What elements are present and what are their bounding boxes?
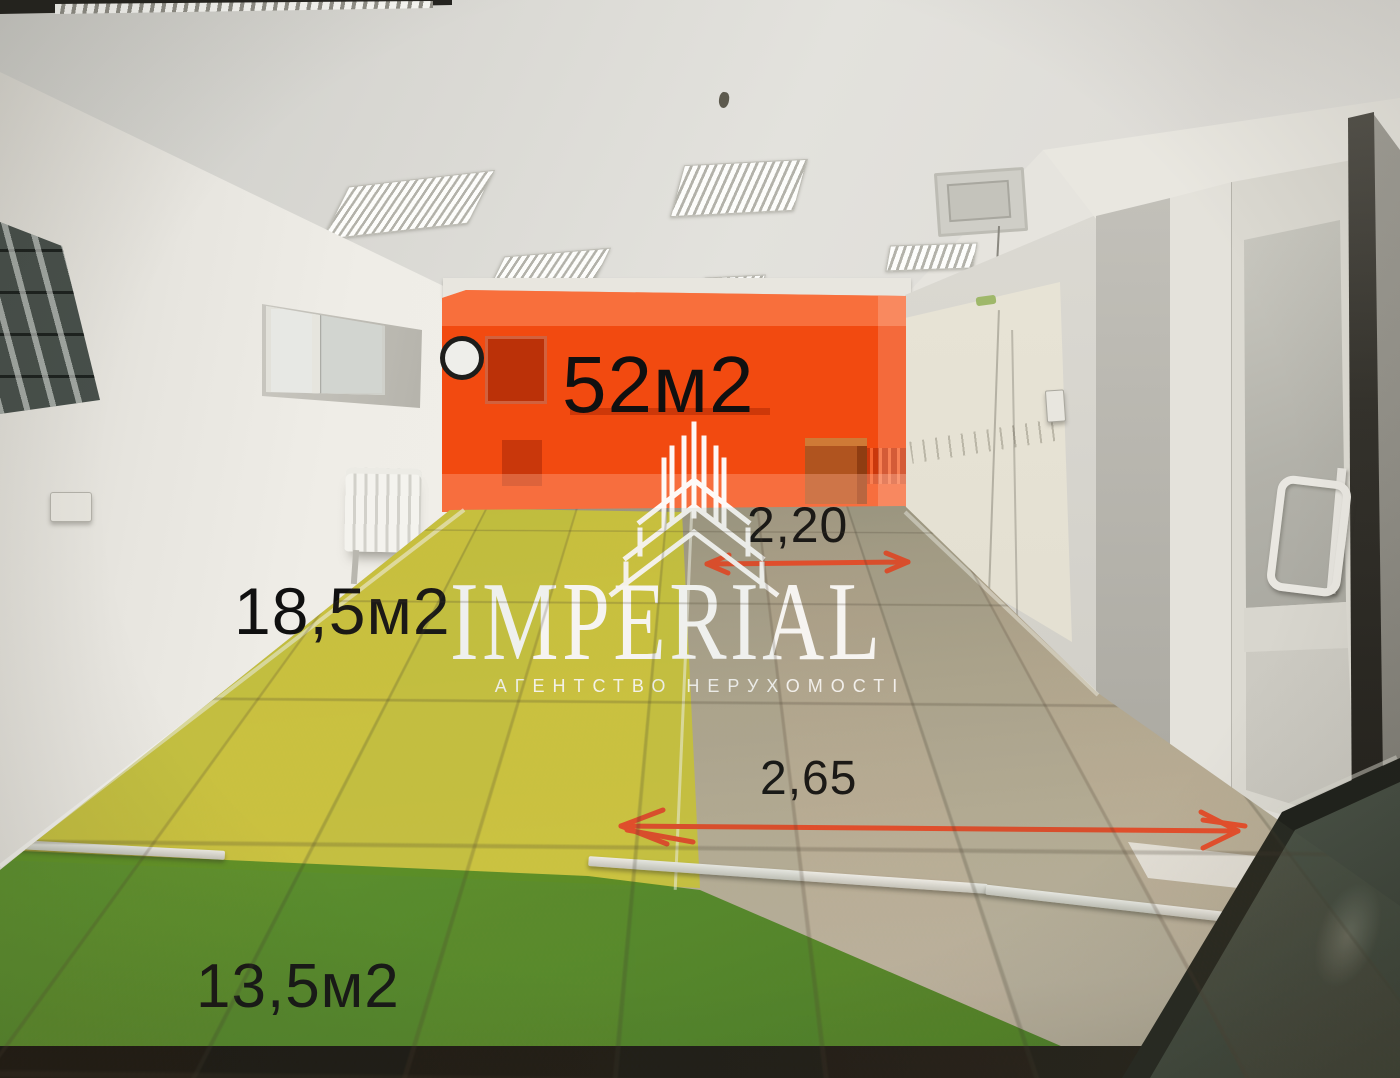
zone-label-back: 52м2 <box>562 345 754 425</box>
imperial-tagline: АГЕНТСТВО НЕРУХОМОСТІ <box>440 676 960 697</box>
measure-label-front: 2,65 <box>760 755 857 803</box>
light-switch <box>1045 389 1066 422</box>
ceiling-vent-inner <box>947 180 1011 222</box>
back-room-window <box>485 336 547 404</box>
radiator <box>344 467 421 552</box>
back-room-right-light <box>878 296 906 512</box>
zone-label-middle: 18,5м2 <box>234 578 451 644</box>
ceiling-light <box>670 159 808 217</box>
imperial-wordmark: IMPERIAL <box>450 566 884 678</box>
door-frame <box>1168 178 1234 804</box>
wall-outlet <box>50 492 92 522</box>
measure-arrow-front <box>605 798 1255 858</box>
door-handle <box>1265 474 1353 598</box>
leaning-glass-panel <box>1118 740 1400 1078</box>
interior-photo: 52м2 2,20 18,5м2 2,65 13,5м2 IMPER <box>0 0 1400 1078</box>
wall-clock <box>440 336 484 380</box>
window-pane-right <box>318 312 385 398</box>
zone-label-front: 13,5м2 <box>196 956 400 1018</box>
window-mullion <box>312 306 320 398</box>
ceiling-light <box>885 242 977 271</box>
